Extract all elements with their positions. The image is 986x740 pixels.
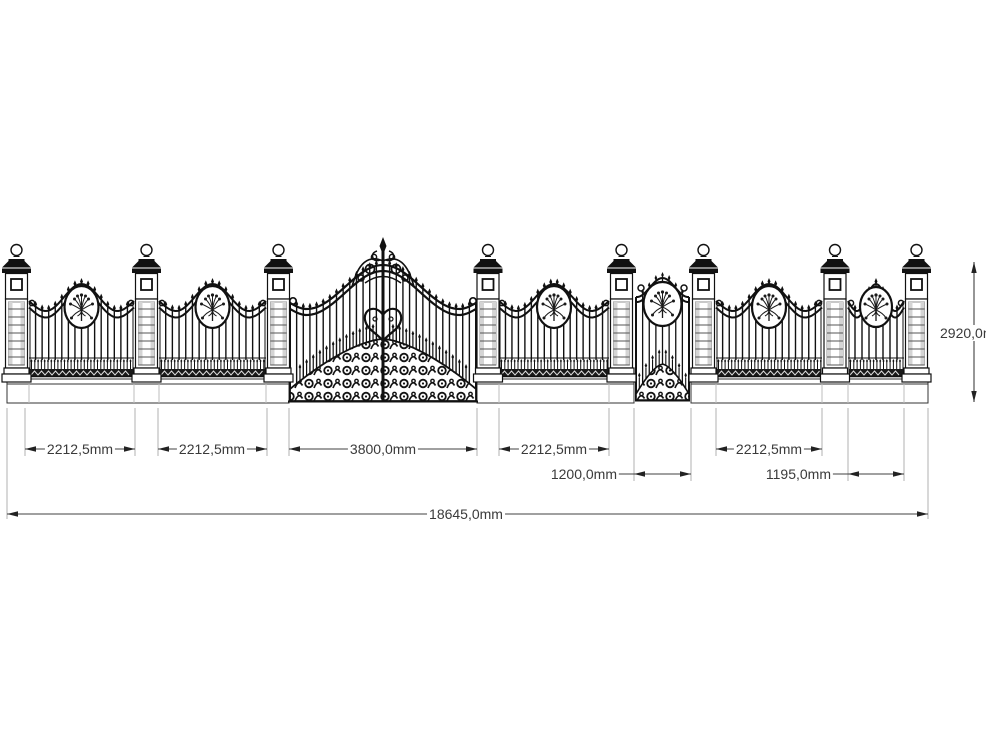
- drawing-canvas: 2212,5mm 2212,5mm 3800,0mm 2212,5mm 1200…: [0, 0, 986, 740]
- dim-label-overall-width: 18645,0mm: [427, 506, 505, 522]
- dim-label-panel-4: 2212,5mm: [734, 441, 804, 457]
- dim-label-panel-1: 2212,5mm: [45, 441, 115, 457]
- fence-elevation-drawing: [0, 0, 986, 740]
- dim-label-main-gate: 3800,0mm: [348, 441, 418, 457]
- dim-label-wicket-gate: 1200,0mm: [549, 466, 619, 482]
- dim-label-height: 2920,0mm: [938, 325, 986, 341]
- dim-label-panel-5: 1195,0mm: [764, 466, 833, 482]
- dim-label-panel-2: 2212,5mm: [177, 441, 247, 457]
- drawing-page: { "page": { "background": "#ffffff" }, "…: [0, 0, 986, 740]
- dim-label-panel-3: 2212,5mm: [519, 441, 589, 457]
